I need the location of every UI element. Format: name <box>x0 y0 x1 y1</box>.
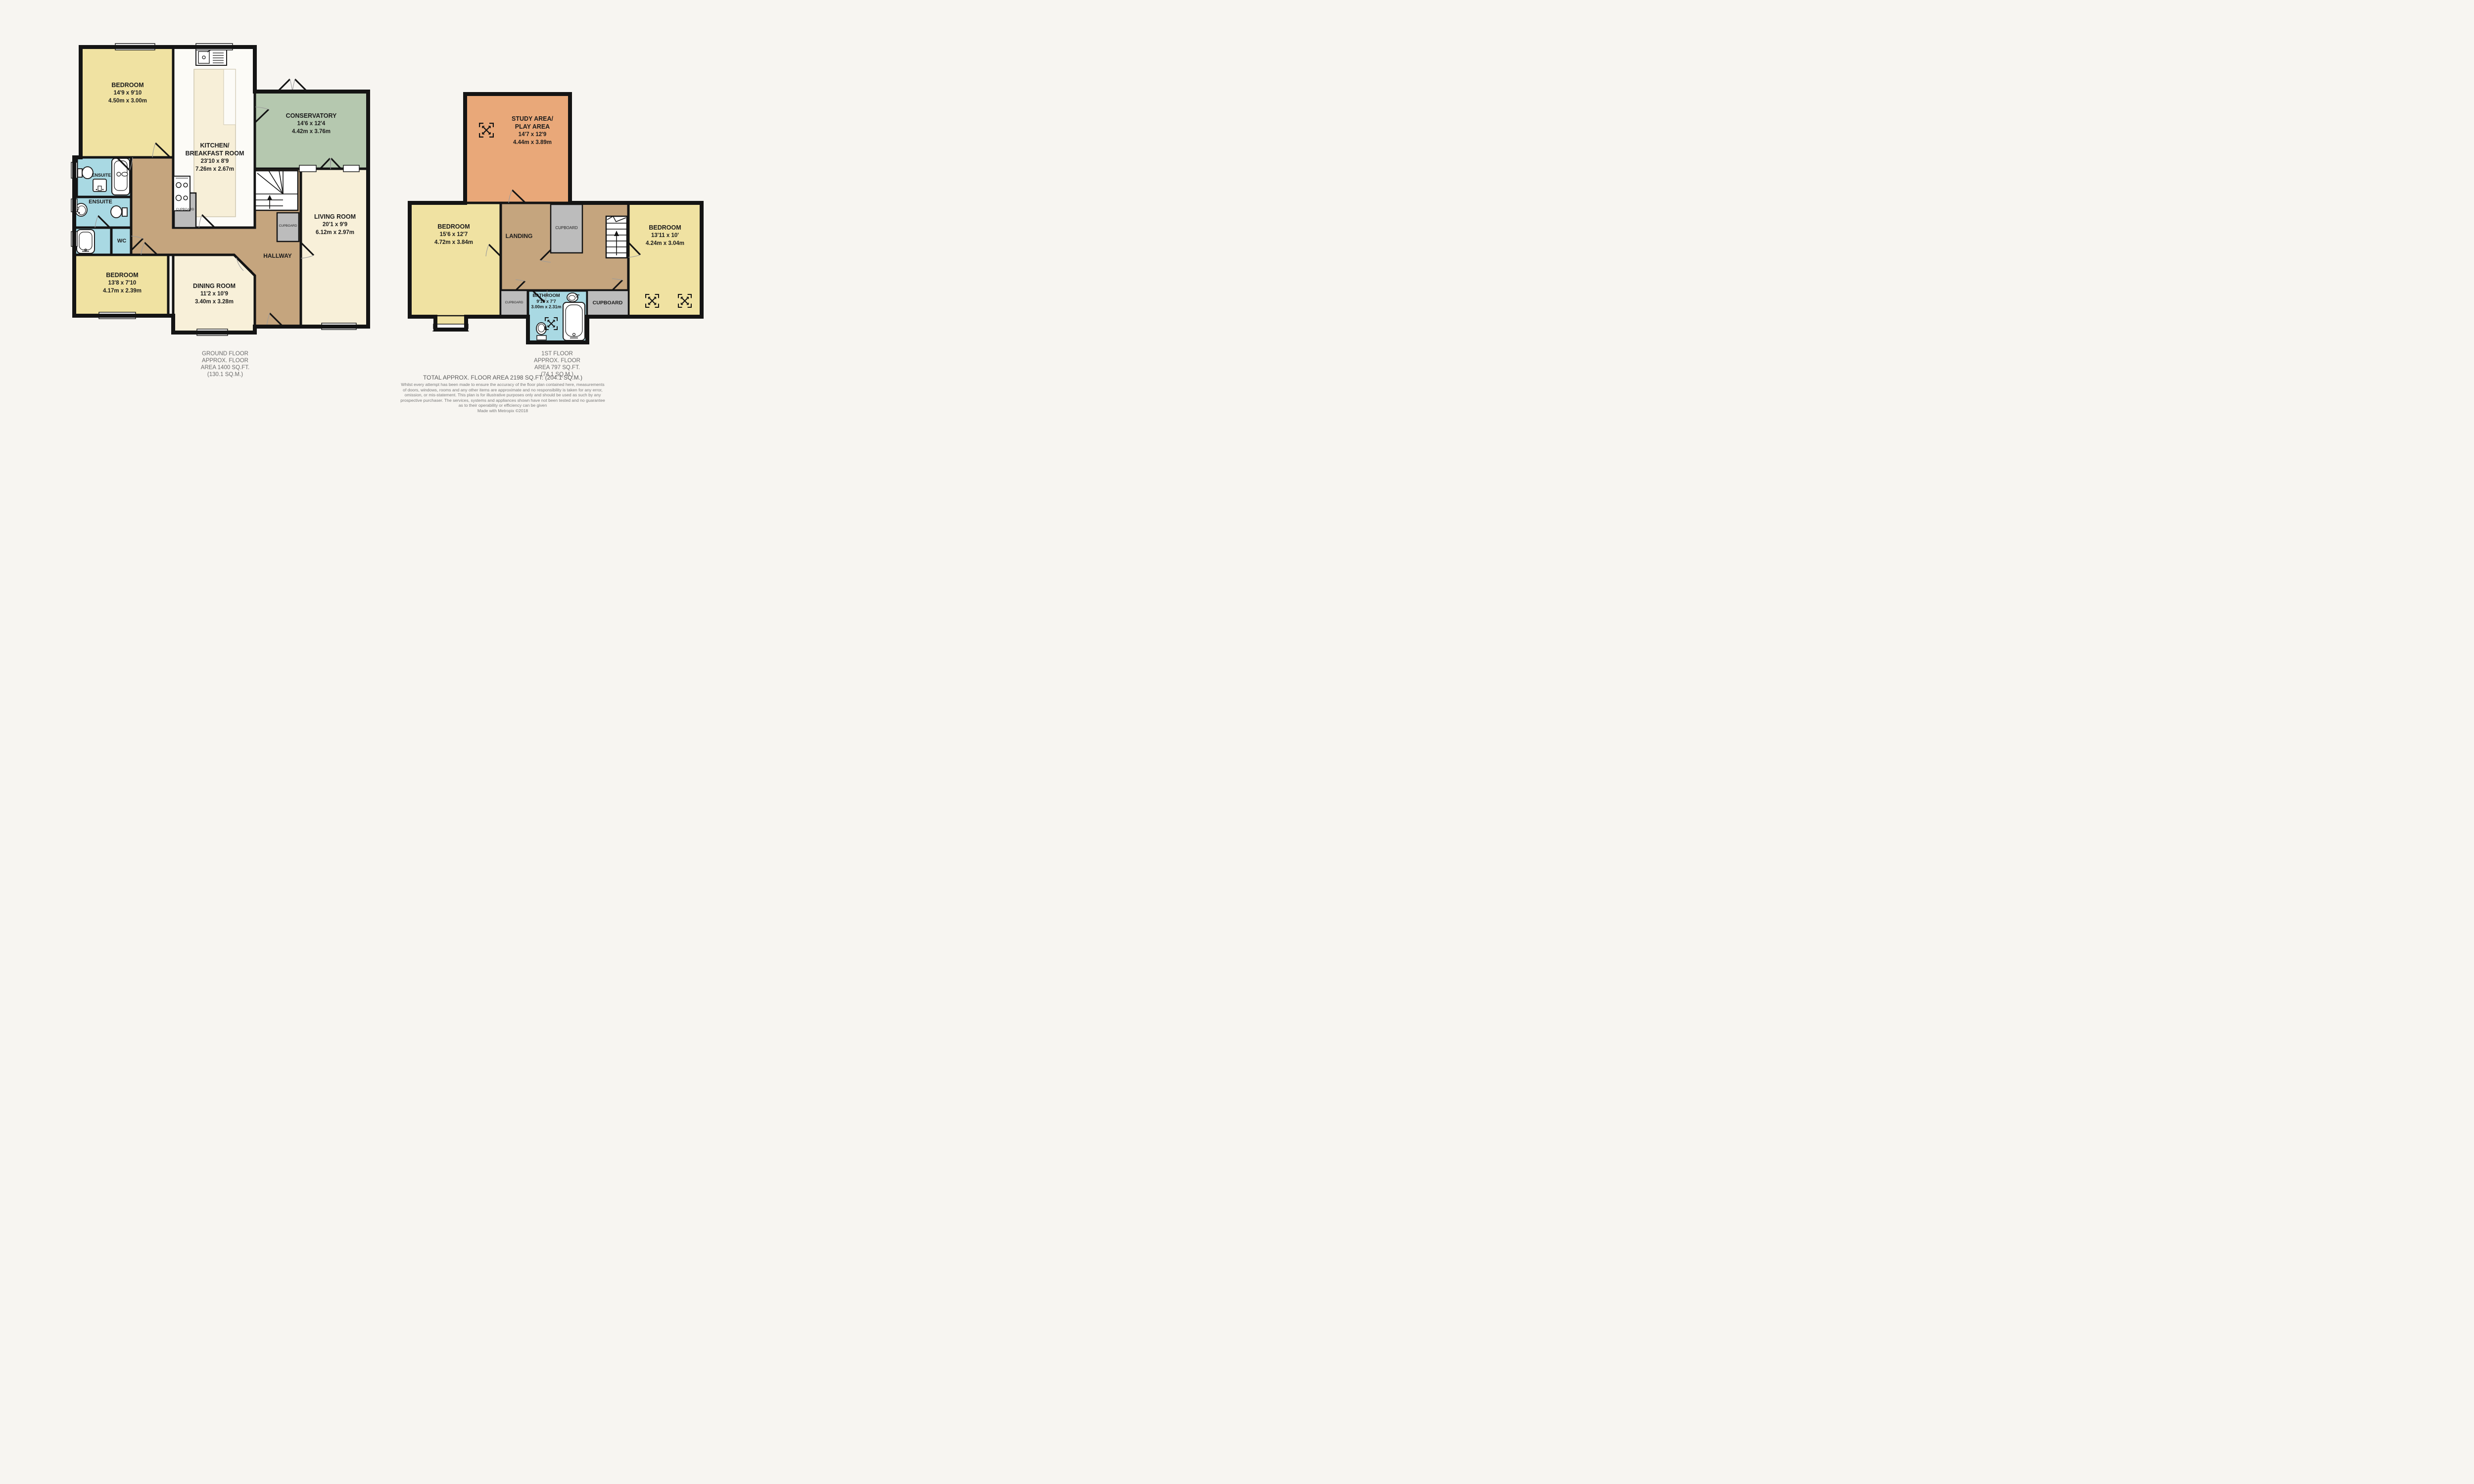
room-dims-m: 4.44m x 3.89m <box>512 139 553 146</box>
bathroom-toilet-icon <box>536 323 546 340</box>
room-bedroom-right <box>628 203 702 317</box>
room-dims-ft: 13'11 x 10' <box>646 232 684 239</box>
room-name: ENSUITE <box>92 173 111 178</box>
caption-line: 1ST FLOOR <box>534 350 580 357</box>
room-name: BATHROOM <box>531 293 561 299</box>
room-dims-ft: 14'7 x 12'9 <box>512 131 553 139</box>
room-dims-ft: 20'1 x 9'9 <box>314 221 356 229</box>
room-name: CUPBOARD <box>176 208 194 211</box>
caption-line: (130.1 SQ.M.) <box>201 371 249 378</box>
label-bedroom-right: BEDROOM 13'11 x 10' 4.24m x 3.04m <box>646 224 684 247</box>
room-name: BEDROOM <box>646 224 684 232</box>
room-name: BEDROOM <box>103 271 142 279</box>
room-name: LANDING <box>506 233 533 239</box>
label-cupboard-kitchen: CUPBOARD <box>176 208 194 211</box>
room-dims-m: 4.24m x 3.04m <box>646 239 684 247</box>
room-name: HALLWAY <box>263 252 292 259</box>
room-dims-m: 3.40m x 3.28m <box>193 298 236 306</box>
label-hallway: HALLWAY <box>263 252 292 259</box>
room-dims-ft: 14'6 x 12'4 <box>286 120 337 128</box>
ensuite-main-bath-icon <box>77 230 95 253</box>
label-landing: LANDING <box>506 233 533 239</box>
room-dims-ft: 13'8 x 7'10 <box>103 279 142 287</box>
stove-icon <box>174 176 190 211</box>
label-dining-room: DINING ROOM 11'2 x 10'9 3.40m x 3.28m <box>193 282 236 306</box>
room-name: PLAY AREA <box>512 123 553 131</box>
room-dims-ft: 14'9 x 9'10 <box>108 89 147 97</box>
ensuite-top-toilet-icon <box>78 167 93 179</box>
ensuite-main-toilet-icon <box>111 206 127 218</box>
label-cupboard-top: CUPBOARD <box>555 226 577 230</box>
label-wc: WC <box>117 238 126 244</box>
room-name: CUPBOARD <box>555 226 577 230</box>
room-dims-m: 4.72m x 3.84m <box>434 239 473 246</box>
room-dims-ft: 15'6 x 12'7 <box>434 231 473 239</box>
floorplan-canvas: BEDROOM 14'9 x 9'10 4.50m x 3.00m KITCHE… <box>0 0 776 465</box>
label-kitchen: KITCHEN/ BREAKFAST ROOM 23'10 x 8'9 7.26… <box>186 142 244 173</box>
stairs-first <box>606 216 627 258</box>
label-cupboard-right: CUPBOARD <box>593 300 623 306</box>
room-dims-m: 4.17m x 2.39m <box>103 287 142 295</box>
room-dims-m: 3.00m x 2.31m <box>531 304 561 310</box>
caption-line: APPROX. FLOOR <box>201 357 249 364</box>
room-name: CONSERVATORY <box>286 112 337 120</box>
label-ensuite-main: ENSUITE <box>89 199 112 205</box>
label-study-area: STUDY AREA/ PLAY AREA 14'7 x 12'9 4.44m … <box>512 115 553 146</box>
kitchen-sink-icon <box>196 49 227 65</box>
ensuite-top-shower-tray-icon <box>93 179 106 191</box>
ground-floor-caption: GROUND FLOOR APPROX. FLOOR AREA 1400 SQ.… <box>201 350 249 378</box>
ensuite-top-bath-icon <box>112 158 130 195</box>
room-dims-ft: 23'10 x 8'9 <box>186 157 244 165</box>
bathroom-bath-icon <box>563 302 585 340</box>
label-bedroom-bottom: BEDROOM 13'8 x 7'10 4.17m x 2.39m <box>103 271 142 295</box>
disclaimer-line: Whilst every attempt has been made to en… <box>400 382 605 387</box>
label-cupboard-left: CUPBOARD <box>505 301 523 304</box>
label-bedroom-left: BEDROOM 15'6 x 12'7 4.72m x 3.84m <box>434 223 473 246</box>
room-name: WC <box>117 238 126 244</box>
label-cupboard-stairs: CUPBOARD <box>279 224 297 228</box>
room-dims-m: 7.26m x 2.67m <box>186 165 244 173</box>
room-dims-ft: 11'2 x 10'9 <box>193 290 236 298</box>
room-name: CUPBOARD <box>279 224 297 228</box>
room-name: CUPBOARD <box>593 300 623 306</box>
room-name: STUDY AREA/ <box>512 115 553 123</box>
label-conservatory: CONSERVATORY 14'6 x 12'4 4.42m x 3.76m <box>286 112 337 136</box>
disclaimer-line: as to their operability or efficiency ca… <box>400 403 605 408</box>
credit-line: Made with Metropix ©2018 <box>400 408 605 414</box>
caption-line: GROUND FLOOR <box>201 350 249 357</box>
room-study <box>465 94 570 203</box>
stairs-ground <box>255 171 298 210</box>
total-floor-area: TOTAL APPROX. FLOOR AREA 2198 SQ.FT. (20… <box>423 374 582 381</box>
disclaimer-line: omission, or mis-statement. This plan is… <box>400 392 605 398</box>
caption-line: APPROX. FLOOR <box>534 357 580 364</box>
caption-line: AREA 797 SQ.FT. <box>534 364 580 371</box>
room-name: BREAKFAST ROOM <box>186 149 244 157</box>
disclaimer-line: prospective purchaser. The services, sys… <box>400 398 605 403</box>
room-name: BEDROOM <box>434 223 473 231</box>
disclaimer-line: of doors, windows, rooms and any other i… <box>400 387 605 393</box>
room-dims-m: 6.12m x 2.97m <box>314 229 356 237</box>
room-dims-m: 4.50m x 3.00m <box>108 97 147 105</box>
label-bedroom-top: BEDROOM 14'9 x 9'10 4.50m x 3.00m <box>108 81 147 105</box>
label-bathroom: BATHROOM 9'10 x 7'7 3.00m x 2.31m <box>531 293 561 310</box>
room-living <box>301 169 368 327</box>
room-name: KITCHEN/ <box>186 142 244 149</box>
room-name: CUPBOARD <box>505 301 523 304</box>
label-ensuite-top: ENSUITE <box>92 173 111 178</box>
room-name: BEDROOM <box>108 81 147 89</box>
room-dims-ft: 9'10 x 7'7 <box>531 299 561 305</box>
window <box>299 165 316 172</box>
kitchen-counter-notch <box>224 69 236 125</box>
room-dims-m: 4.42m x 3.76m <box>286 128 337 136</box>
room-bedroom-left <box>410 203 501 317</box>
disclaimer: Whilst every attempt has been made to en… <box>400 382 605 414</box>
room-name: ENSUITE <box>89 199 112 205</box>
room-name: LIVING ROOM <box>314 213 356 221</box>
caption-line: AREA 1400 SQ.FT. <box>201 364 249 371</box>
window <box>343 165 359 172</box>
room-name: DINING ROOM <box>193 282 236 290</box>
label-living-room: LIVING ROOM 20'1 x 9'9 6.12m x 2.97m <box>314 213 356 237</box>
